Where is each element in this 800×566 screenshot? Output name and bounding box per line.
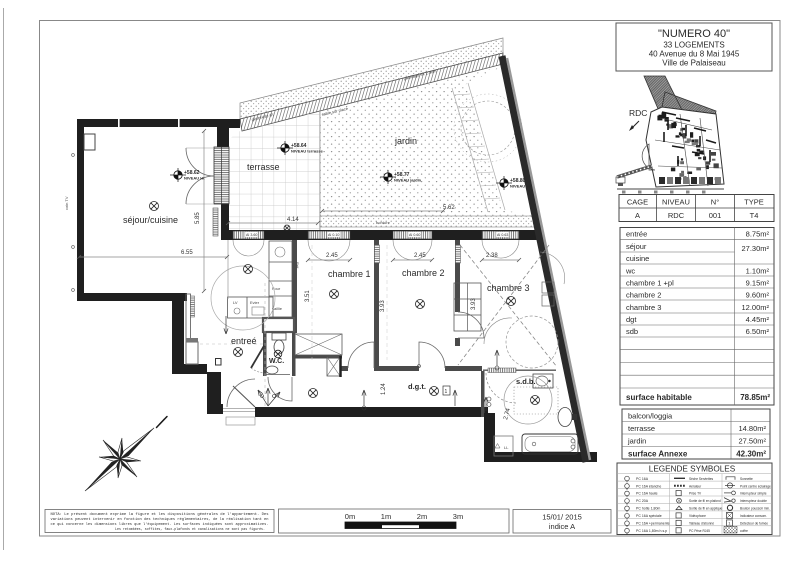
svg-text:5.85: 5.85	[195, 212, 201, 224]
svg-text:CAGE: CAGE	[627, 198, 648, 207]
svg-text:2.38: 2.38	[486, 253, 498, 259]
svg-text:AI 3.60: AI 3.60	[246, 233, 257, 237]
svg-text:3.93: 3.93	[471, 298, 477, 310]
svg-text:s.d.b.: s.d.b.	[516, 377, 536, 386]
svg-text:3.51: 3.51	[305, 290, 311, 302]
svg-text:Evier: Evier	[250, 300, 260, 305]
svg-text:Aérateur: Aérateur	[689, 484, 702, 488]
svg-text:terrasse: terrasse	[628, 424, 655, 433]
svg-text:chambre 3: chambre 3	[487, 283, 530, 293]
svg-text:15/01/ 2015: 15/01/ 2015	[542, 513, 582, 522]
svg-text:0m: 0m	[345, 512, 355, 521]
svg-text:Détecteur de fumée: Détecteur de fumée	[740, 522, 768, 526]
svg-text:wc: wc	[625, 267, 635, 276]
svg-text:Interrupteur double: Interrupteur double	[740, 499, 767, 503]
svg-text:AI 0.63: AI 0.63	[497, 233, 508, 237]
svg-text:2.45: 2.45	[414, 253, 426, 259]
svg-text:TYPE: TYPE	[744, 198, 764, 207]
svg-text:27.30m²: 27.30m²	[741, 244, 769, 253]
svg-text:surface Annexe: surface Annexe	[628, 450, 688, 459]
svg-text:LL: LL	[504, 445, 509, 450]
svg-text:42.30m²: 42.30m²	[736, 450, 766, 459]
svg-text:séjour: séjour	[626, 242, 647, 251]
svg-text:PC Prise RJ45: PC Prise RJ45	[689, 529, 710, 533]
svg-text:AI 0.60: AI 0.60	[409, 233, 420, 237]
svg-text:PC 16A spéciale: PC 16A spéciale	[636, 514, 662, 518]
svg-text:PC 16A étanche: PC 16A étanche	[636, 484, 661, 488]
svg-text:sdb: sdb	[626, 327, 638, 336]
svg-text:Les retombées, soffites, faux-: Les retombées, soffites, faux-plafonds e…	[115, 527, 265, 532]
svg-text:indice A: indice A	[549, 522, 575, 531]
svg-text:PC 16A: PC 16A	[636, 477, 649, 481]
svg-text:chambre 1: chambre 1	[328, 269, 371, 279]
svg-text:PC 16A 1,80m h.s.p: PC 16A 1,80m h.s.p	[636, 529, 667, 533]
svg-text:AI 0.10: AI 0.10	[328, 233, 339, 237]
svg-text:RDC: RDC	[668, 211, 685, 220]
svg-text:NIVEAU jardin: NIVEAU jardin	[394, 178, 422, 183]
svg-text:W.C.: W.C.	[269, 358, 284, 365]
svg-text:5.62: 5.62	[443, 205, 455, 211]
svg-text:4.45m²: 4.45m²	[746, 315, 770, 324]
svg-text:NIVEAU jar: NIVEAU jar	[510, 184, 532, 189]
svg-text:4.14: 4.14	[287, 217, 299, 223]
svg-text:"NUMERO 40": "NUMERO 40"	[658, 28, 730, 40]
svg-text:Sèche Serviettes: Sèche Serviettes	[689, 477, 714, 481]
svg-text:1m: 1m	[381, 512, 391, 521]
svg-text:balcon/loggia: balcon/loggia	[628, 412, 673, 421]
svg-text:12.00m²: 12.00m²	[741, 303, 769, 312]
svg-text:PC 16A +permanente: PC 16A +permanente	[636, 522, 670, 526]
svg-text:2.45: 2.45	[326, 253, 338, 259]
svg-text:chambre 2: chambre 2	[626, 291, 661, 300]
svg-text:1.10m²: 1.10m²	[746, 267, 770, 276]
svg-text:Réf: Réf	[295, 262, 300, 269]
svg-text:d.g.t.: d.g.t.	[408, 382, 426, 391]
svg-text:Sortie de fil en applique: Sortie de fil en applique	[689, 507, 723, 511]
svg-text:T4: T4	[750, 211, 759, 220]
svg-text:Point centre éclairage: Point centre éclairage	[740, 484, 771, 488]
svg-text:dgt: dgt	[626, 315, 637, 324]
svg-text:8.75m²: 8.75m²	[746, 230, 770, 239]
svg-text:N°: N°	[711, 198, 719, 207]
svg-text:1.24: 1.24	[381, 383, 387, 395]
svg-text:6.50m²: 6.50m²	[746, 327, 770, 336]
svg-text:Prise TV: Prise TV	[689, 492, 702, 496]
svg-text:Bouton poussoir min.: Bouton poussoir min.	[740, 507, 770, 511]
svg-text:chambre 1 +pl: chambre 1 +pl	[626, 279, 674, 288]
svg-text:variations peuvent intervenir: variations peuvent intervenir en fonctio…	[51, 517, 270, 522]
svg-text:chambre 2: chambre 2	[402, 268, 445, 278]
svg-text:surface habitable: surface habitable	[626, 393, 692, 402]
svg-text:entrée: entrée	[626, 230, 647, 239]
svg-text:cuisine: cuisine	[626, 254, 649, 263]
svg-text:LEGENDE SYMBOLES: LEGENDE SYMBOLES	[649, 465, 736, 474]
svg-text:PC hotte 1,80m: PC hotte 1,80m	[636, 507, 660, 511]
svg-text:jardin: jardin	[394, 136, 417, 146]
svg-text:6.55: 6.55	[181, 250, 193, 256]
svg-text:RDC: RDC	[629, 108, 647, 118]
svg-text:Ville de Palaiseau: Ville de Palaiseau	[662, 59, 725, 68]
svg-text:NIVEAU terrasse: NIVEAU terrasse	[291, 149, 324, 154]
svg-text:1: 1	[445, 389, 448, 395]
svg-text:Tableau d'abonné: Tableau d'abonné	[689, 522, 714, 526]
svg-text:ce qui concerne les dimensions: ce qui concerne les dimensions libres qu…	[51, 522, 269, 527]
svg-text:40 Avenue du 8 Mai 1945: 40 Avenue du 8 Mai 1945	[649, 50, 740, 59]
svg-text:PC 20A: PC 20A	[636, 499, 649, 503]
svg-text:séjour/cuisine: séjour/cuisine	[123, 215, 178, 225]
svg-text:entreé: entreé	[231, 336, 257, 346]
svg-text:Sonnette: Sonnette	[740, 477, 753, 481]
svg-text:Interrupteur simple: Interrupteur simple	[740, 492, 767, 496]
svg-text:78.85m²: 78.85m²	[740, 393, 770, 402]
svg-text:terrasse: terrasse	[247, 162, 280, 172]
svg-text:14.80m²: 14.80m²	[738, 424, 766, 433]
svg-text:jardin: jardin	[627, 437, 646, 446]
svg-text:bordure: bordure	[376, 220, 391, 225]
svg-text:3m: 3m	[453, 512, 463, 521]
svg-text:LV: LV	[233, 300, 238, 305]
svg-text:NIVEAU: NIVEAU	[662, 198, 690, 207]
svg-text:001: 001	[709, 211, 722, 220]
svg-text:9.15m²: 9.15m²	[746, 279, 770, 288]
svg-text:coffre: coffre	[740, 529, 748, 533]
svg-text:33 LOGEMENTS: 33 LOGEMENTS	[663, 41, 724, 50]
svg-text:coin TV: coin TV	[64, 196, 69, 210]
svg-text:chambre 3: chambre 3	[626, 303, 661, 312]
svg-text:27.50m²: 27.50m²	[738, 437, 766, 446]
svg-text:2m: 2m	[417, 512, 427, 521]
svg-text:A: A	[635, 211, 640, 220]
svg-text:3.93: 3.93	[380, 300, 386, 312]
svg-text:PC 16A haute: PC 16A haute	[636, 492, 658, 496]
svg-text:Sortie de fil en plafond: Sortie de fil en plafond	[689, 499, 721, 503]
svg-text:9.60m²: 9.60m²	[746, 291, 770, 300]
svg-text:NIVEAU Ht: NIVEAU Ht	[184, 176, 205, 181]
svg-text:NOTA: Le présent document expr: NOTA: Le présent document exprime la fig…	[51, 512, 270, 517]
svg-text:Indicateur consom.: Indicateur consom.	[740, 514, 767, 518]
svg-text:Vidéophone: Vidéophone	[689, 514, 706, 518]
